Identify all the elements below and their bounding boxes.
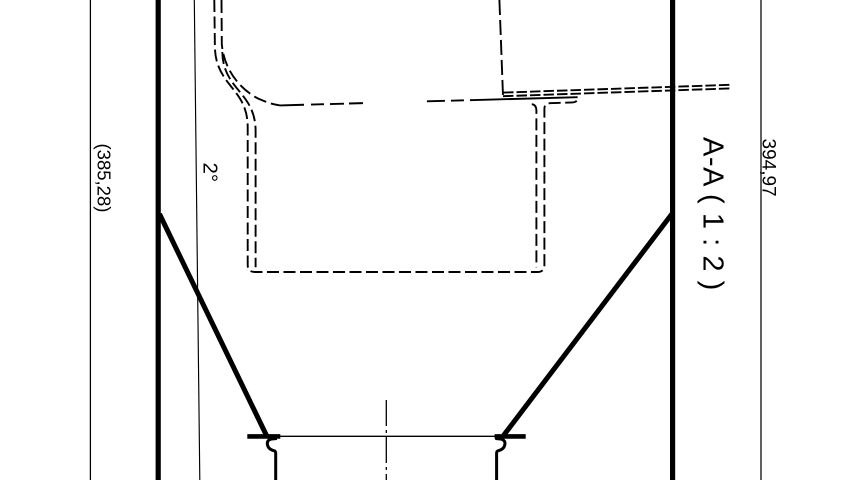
svg-text:A-A ( 1 : 2 ): A-A ( 1 : 2 ): [697, 137, 729, 291]
svg-text:(385,28): (385,28): [94, 144, 115, 213]
svg-text:2°: 2°: [199, 163, 222, 183]
svg-text:394,97: 394,97: [758, 139, 779, 197]
